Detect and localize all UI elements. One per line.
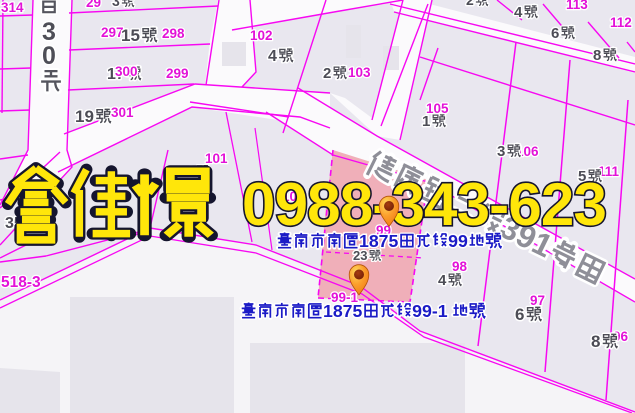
svg-text:6: 6 bbox=[515, 305, 524, 324]
svg-text:299: 299 bbox=[166, 66, 189, 81]
svg-text:8: 8 bbox=[591, 332, 600, 351]
svg-text:4: 4 bbox=[268, 48, 277, 65]
svg-text:3: 3 bbox=[112, 0, 120, 9]
svg-text:300: 300 bbox=[115, 64, 138, 79]
svg-text:99-1: 99-1 bbox=[412, 301, 448, 321]
svg-text:113: 113 bbox=[566, 0, 588, 12]
svg-text:518-3: 518-3 bbox=[1, 274, 41, 291]
svg-text:2: 2 bbox=[466, 0, 474, 8]
svg-text:3: 3 bbox=[497, 143, 505, 160]
svg-text:101: 101 bbox=[205, 151, 228, 166]
svg-text:8: 8 bbox=[593, 47, 601, 64]
svg-text:314: 314 bbox=[1, 0, 24, 15]
svg-text:98: 98 bbox=[452, 259, 468, 274]
svg-text:6: 6 bbox=[551, 25, 559, 42]
svg-text:19: 19 bbox=[75, 107, 94, 126]
svg-text:1: 1 bbox=[422, 113, 430, 130]
svg-text:1875: 1875 bbox=[323, 301, 363, 321]
svg-text:4: 4 bbox=[438, 272, 447, 289]
svg-text:29: 29 bbox=[86, 0, 101, 10]
svg-text:301: 301 bbox=[111, 105, 134, 120]
svg-text:103: 103 bbox=[348, 65, 371, 80]
svg-text:2: 2 bbox=[323, 65, 331, 82]
svg-text:102: 102 bbox=[250, 28, 273, 43]
svg-text:298: 298 bbox=[162, 26, 185, 41]
svg-text:15: 15 bbox=[121, 26, 140, 45]
svg-text:1875: 1875 bbox=[359, 231, 399, 251]
svg-text:0: 0 bbox=[42, 42, 56, 70]
svg-text:112: 112 bbox=[610, 15, 632, 30]
svg-text:4: 4 bbox=[514, 4, 523, 21]
svg-text:0988-343-623: 0988-343-623 bbox=[242, 171, 606, 238]
svg-text:99: 99 bbox=[448, 231, 468, 251]
